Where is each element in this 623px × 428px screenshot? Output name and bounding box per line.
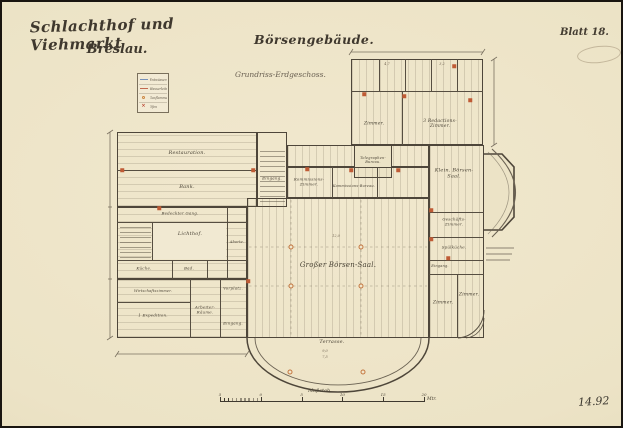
gas-flame-mark-icon — [139, 96, 148, 100]
stove-marker — [452, 64, 456, 68]
building-title: Börsengebäude. — [254, 32, 374, 47]
legend-rows: EntwässerungWasserleitungGasflammen×Öfen — [139, 76, 167, 111]
legend-label: Wasserleitung — [150, 87, 168, 91]
stove-marker — [246, 279, 250, 283]
stove-marker — [402, 94, 406, 98]
wall — [332, 167, 333, 198]
staircase-courtyard — [120, 224, 151, 258]
room-label: Zimmer. — [459, 292, 479, 297]
inventory-number: 14.92 — [578, 394, 610, 409]
wall — [220, 279, 221, 338]
wall — [457, 59, 458, 92]
floor-plan: Restauration.Bank.Eingang.Bedeckter Gang… — [2, 2, 621, 426]
room-label: Bedeckter Gang. — [161, 212, 198, 217]
scale-tick — [302, 397, 303, 402]
room-label: Zimmer. — [433, 300, 453, 305]
legend-line-swatch — [140, 79, 148, 81]
column-marker — [361, 370, 366, 375]
room-label: Bad. — [184, 267, 194, 272]
room-label: Bank. — [179, 185, 195, 191]
room-label: Eingang. — [431, 264, 448, 268]
legend-label: Öfen — [150, 105, 158, 109]
room-label: 1 Expedition. — [138, 314, 168, 319]
scale-tick — [342, 397, 343, 402]
room-label: 3 Redactions- Zimmer. — [423, 119, 457, 129]
room-label: Klein. Börsen- Saal. — [435, 168, 474, 180]
dimension-text: 9,0 — [322, 349, 328, 353]
scale-bar: Maßstab 505101520 Mtr. — [220, 394, 424, 406]
column-marker — [289, 245, 294, 250]
stove-marker — [251, 168, 255, 172]
room-label: Kommissions-Bureau. — [333, 184, 375, 188]
room-label: Zimmer. — [364, 121, 384, 126]
wall — [402, 91, 403, 145]
dimension-text: 3,2 — [439, 62, 445, 66]
stove-marker — [468, 98, 472, 102]
scale-tick — [383, 397, 384, 402]
stove-marker — [396, 168, 400, 172]
stove-marker — [362, 92, 366, 96]
legend-item: Wasserleitung — [139, 85, 167, 94]
dimension-text: 4,7 — [384, 62, 390, 66]
bay-outer-arc — [492, 149, 516, 237]
wall — [431, 59, 432, 92]
room-label: Großer Börsen-Saal. — [300, 261, 376, 269]
room-label: Arbeiter- Räume. — [195, 305, 215, 314]
terrace-outer-arc — [247, 338, 429, 392]
legend-item: ×Öfen — [139, 103, 167, 111]
wall — [429, 260, 484, 261]
water-pipe-line-icon — [139, 88, 148, 90]
wall — [429, 212, 484, 213]
stove-marker — [157, 206, 161, 210]
room-label: Terrasse. — [319, 340, 344, 346]
scale-tick-label: 20 — [421, 392, 426, 397]
room-label: Kommissions- Zimmer. — [294, 177, 324, 186]
room-label: Eingang. — [262, 177, 282, 182]
stove-marker — [429, 237, 433, 241]
dimension-text: 12,0 — [332, 234, 340, 238]
sheet-title-line2: Breslau. — [57, 42, 177, 57]
room-label: Geschäfts- Zimmer. — [442, 217, 465, 226]
wall — [377, 167, 378, 198]
stove-marker — [349, 168, 353, 172]
stove-marker — [429, 208, 433, 212]
legend-label: Entwässerung — [150, 78, 168, 82]
stove-marker — [446, 256, 450, 260]
room-label: Küche. — [136, 267, 151, 272]
plan-caption: Grundriss-Erdgeschoss. — [235, 70, 326, 79]
legend-label: Gasflammen — [150, 96, 168, 100]
column-marker — [288, 370, 293, 375]
dimension-text: 7,5 — [322, 355, 328, 359]
room-label: Restauration. — [169, 151, 206, 157]
stove-marker — [120, 168, 124, 172]
wall — [207, 260, 208, 279]
wall — [152, 222, 153, 260]
scale-caption: Maßstab — [308, 388, 330, 394]
scale-tick-label: 5 — [300, 392, 303, 397]
room-label: Eingang. — [223, 322, 243, 327]
wall — [429, 237, 484, 238]
room-label: Spülküche. — [442, 246, 467, 251]
scale-subdivisions — [220, 398, 261, 402]
plan-block-north-wing — [351, 59, 483, 145]
scale-unit: Mtr. — [427, 397, 437, 402]
column-marker — [359, 284, 364, 289]
room-label: Wirtschaftszimmer. — [134, 289, 172, 293]
drawing-sheet: Schlachthof und Viehmarkt Breslau. Börse… — [0, 0, 623, 428]
column-marker — [289, 284, 294, 289]
legend-item: Gasflammen — [139, 94, 167, 103]
legend-cross-swatch: × — [141, 104, 145, 109]
room-label: Lichthof. — [178, 232, 202, 238]
wall — [457, 274, 458, 338]
stove-mark-icon: × — [139, 104, 148, 109]
wall — [117, 170, 257, 171]
bay-window — [484, 154, 514, 230]
wall — [190, 279, 191, 338]
scale-tick — [220, 397, 221, 402]
scale-tick-label: 15 — [381, 392, 386, 397]
scale-tick — [261, 397, 262, 402]
legend-circle-swatch — [142, 96, 146, 100]
scale-tick-label: 5 — [219, 392, 222, 397]
legend-line-swatch — [140, 88, 148, 90]
east-steps — [486, 248, 514, 260]
stove-marker — [305, 167, 309, 171]
legend-box: EntwässerungWasserleitungGasflammen×Öfen — [137, 73, 169, 113]
scale-tick-label: 10 — [340, 392, 345, 397]
courtyard-open-area — [153, 223, 226, 259]
wall — [172, 260, 173, 279]
column-marker — [359, 245, 364, 250]
wall — [351, 91, 483, 92]
wall — [227, 207, 228, 279]
drainage-line-icon — [139, 79, 148, 81]
scale-tick — [424, 397, 425, 402]
room-label: Telegraphen- Bureau. — [360, 156, 386, 164]
wall — [405, 59, 406, 92]
wall — [379, 59, 380, 92]
sheet-number: Blatt 18. — [560, 27, 609, 38]
legend-item: Entwässerung — [139, 76, 167, 85]
room-label: Aborte. — [230, 240, 245, 244]
wall — [117, 302, 190, 303]
room-label: Vorplatz. — [223, 287, 243, 292]
scale-tick-label: 0 — [260, 392, 263, 397]
bay-inner-arc — [488, 152, 509, 234]
